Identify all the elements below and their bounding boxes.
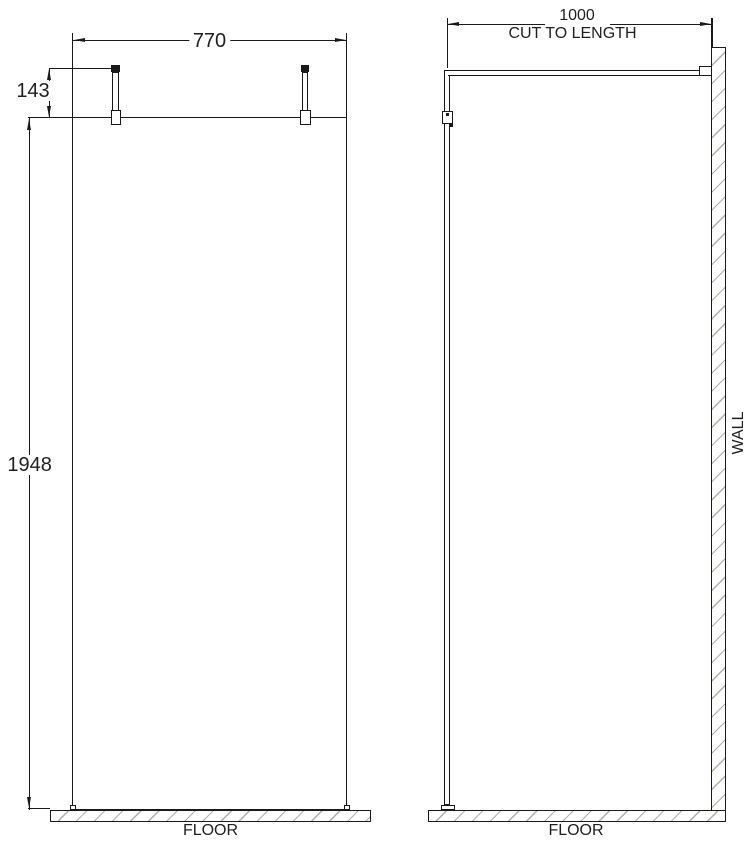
support-post-left-shaft	[112, 72, 118, 112]
shower-screen-technical-drawing: 770 143 1948 FLOOR 1000	[0, 0, 752, 867]
support-post-right-shaft	[302, 72, 308, 112]
extension-line	[711, 18, 712, 48]
extension-line	[346, 33, 347, 117]
wall	[711, 47, 726, 811]
dimension-770-arrow-right	[335, 38, 346, 42]
glass-foot-left	[70, 805, 76, 810]
dimension-1948-arrow-up	[27, 119, 31, 130]
floor-front	[50, 810, 371, 823]
floor-label-front: FLOOR	[180, 823, 241, 839]
dimension-1000-label: 1000	[556, 8, 598, 24]
dimension-143-arrow-down	[47, 106, 51, 117]
extension-line	[28, 808, 50, 809]
cut-to-length-note: CUT TO LENGTH	[505, 26, 639, 42]
floor-label-side: FLOOR	[545, 823, 606, 839]
dimension-1948-arrow-down	[27, 797, 31, 808]
glass-foot-side	[441, 805, 455, 810]
dimension-1948-label: 1948	[3, 455, 56, 475]
glass-clamp-pin	[446, 113, 449, 117]
glass-clamp-nub	[449, 123, 453, 127]
dimension-770-label: 770	[189, 31, 230, 51]
extension-line	[72, 33, 73, 117]
extension-line	[28, 117, 72, 118]
support-post-right-clamp	[300, 110, 311, 124]
support-arm	[448, 70, 700, 76]
glass-panel-edge	[444, 70, 450, 805]
support-post-left-clamp	[111, 110, 122, 124]
dimension-770-arrow-left	[74, 38, 85, 42]
glass-panel-front	[72, 117, 347, 810]
wall-label: WALL	[731, 411, 747, 454]
dimension-1000-arrow-left	[448, 22, 459, 26]
extension-line	[447, 18, 448, 69]
floor-side	[428, 810, 726, 823]
glass-foot-right	[344, 805, 350, 810]
extension-line	[49, 68, 113, 69]
dimension-1000-arrow-right	[700, 22, 711, 26]
wall-bracket	[699, 66, 712, 76]
dimension-143-label: 143	[14, 81, 51, 101]
